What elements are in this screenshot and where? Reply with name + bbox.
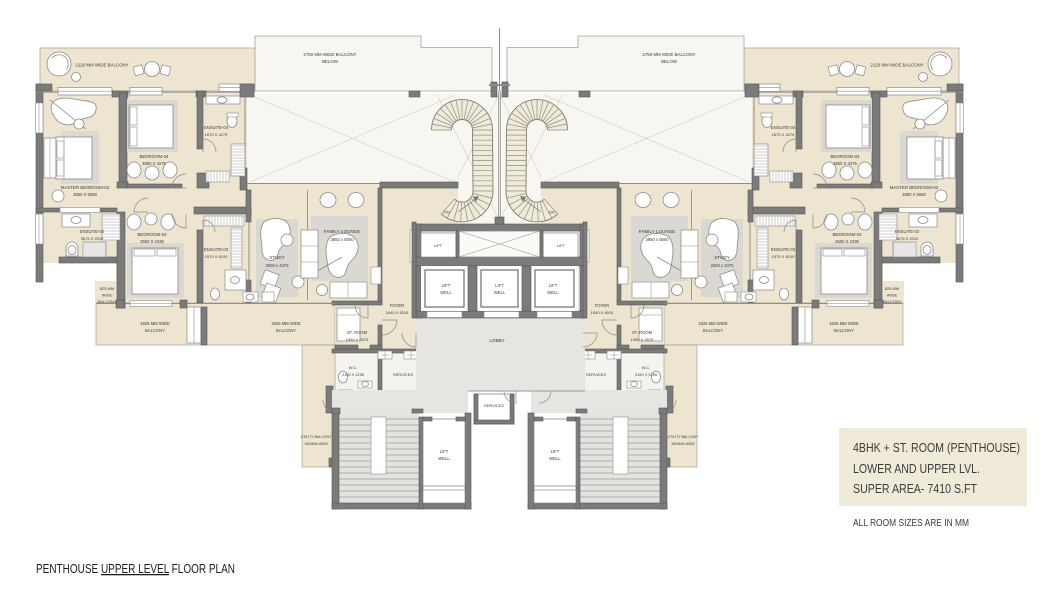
svg-text:SERVICES: SERVICES: [484, 403, 504, 408]
svg-text:W.C.: W.C.: [349, 365, 358, 370]
svg-text:BALCONY: BALCONY: [882, 299, 901, 304]
svg-text:3850 x 5600: 3850 x 5600: [330, 237, 354, 242]
svg-text:WIDE: WIDE: [887, 293, 898, 298]
svg-text:2500 x 4375: 2500 x 4375: [265, 263, 289, 268]
svg-text:BALCONY: BALCONY: [703, 328, 723, 333]
svg-text:SERVICES: SERVICES: [586, 372, 606, 377]
svg-text:BEDROOM-03: BEDROOM-03: [832, 232, 862, 237]
svg-text:1670 X 4275: 1670 X 4275: [205, 132, 228, 137]
svg-text:3650 X 4275: 3650 X 4275: [833, 161, 857, 166]
svg-text:ENSUITE-04: ENSUITE-04: [771, 125, 796, 130]
svg-text:DN: DN: [549, 211, 555, 215]
svg-text:ST. ROOM: ST. ROOM: [632, 330, 653, 335]
svg-text:FOYER: FOYER: [595, 303, 609, 308]
svg-text:1570 X 6100: 1570 X 6100: [772, 254, 795, 259]
svg-text:ENSUITE-04: ENSUITE-04: [204, 125, 229, 130]
svg-text:UTILITY BALCONY: UTILITY BALCONY: [301, 435, 332, 439]
svg-text:BALCONY: BALCONY: [834, 328, 854, 333]
svg-text:BALCONY: BALCONY: [145, 328, 165, 333]
svg-text:1825 MM WIDE: 1825 MM WIDE: [140, 321, 170, 326]
svg-text:LIFT: LIFT: [442, 283, 451, 288]
svg-text:WELL: WELL: [438, 456, 450, 461]
svg-text:DN: DN: [444, 211, 450, 215]
svg-text:SUPER AREA- 7410 S.FT: SUPER AREA- 7410 S.FT: [853, 481, 977, 496]
svg-text:825 MM: 825 MM: [100, 286, 114, 291]
svg-text:LOWER AND UPPER LVL.: LOWER AND UPPER LVL.: [853, 461, 980, 476]
svg-text:W.C.: W.C.: [642, 365, 651, 370]
svg-text:2120 MM WIDE BALCONY: 2120 MM WIDE BALCONY: [870, 63, 923, 68]
svg-text:1950 X 2675: 1950 X 2675: [346, 337, 369, 342]
svg-text:ENSUITE-02: ENSUITE-02: [895, 229, 920, 234]
svg-text:ENSUITE-03: ENSUITE-03: [204, 247, 229, 252]
svg-text:1825 MM WIDE: 1825 MM WIDE: [698, 321, 728, 326]
svg-text:1640 X 6515: 1640 X 6515: [386, 310, 409, 315]
svg-text:825 MM: 825 MM: [885, 286, 899, 291]
svg-text:SERVICES: SERVICES: [393, 372, 413, 377]
svg-text:WELL: WELL: [549, 456, 561, 461]
svg-text:2750 MM WIDE BALCONY: 2750 MM WIDE BALCONY: [303, 52, 356, 57]
svg-text:MASTER BEDROOM-02: MASTER BEDROOM-02: [890, 185, 939, 190]
svg-text:1570 X 6100: 1570 X 6100: [205, 254, 228, 259]
svg-text:PENTHOUSE UPPER LEVEL FLOOR PL: PENTHOUSE UPPER LEVEL FLOOR PLAN: [36, 561, 235, 576]
svg-text:WELL: WELL: [547, 290, 559, 295]
svg-text:LIFT: LIFT: [551, 449, 560, 454]
svg-text:WELL: WELL: [494, 290, 506, 295]
svg-text:3675 X 2010: 3675 X 2010: [896, 236, 919, 241]
svg-text:3650 X 5660: 3650 X 5660: [902, 192, 926, 197]
svg-text:ST. ROOM: ST. ROOM: [347, 330, 368, 335]
svg-text:BALCONY: BALCONY: [97, 299, 116, 304]
svg-text:BALCONY: BALCONY: [276, 328, 296, 333]
svg-text:2750 MM WIDE BALCONY: 2750 MM WIDE BALCONY: [642, 52, 695, 57]
svg-text:3675 X 2010: 3675 X 2010: [81, 236, 104, 241]
svg-text:WELL: WELL: [440, 290, 452, 295]
svg-text:LIFT: LIFT: [557, 243, 566, 248]
svg-text:ALL ROOM SIZES ARE IN MM: ALL ROOM SIZES ARE IN MM: [853, 518, 969, 529]
svg-text:2120 MM WIDE BALCONY: 2120 MM WIDE BALCONY: [75, 63, 128, 68]
svg-text:MASTER BEDROOM-02: MASTER BEDROOM-02: [61, 185, 110, 190]
svg-text:3550 X 4335: 3550 X 4335: [140, 239, 164, 244]
svg-text:1640 X 6515: 1640 X 6515: [591, 310, 614, 315]
svg-text:STUDY: STUDY: [714, 255, 730, 260]
svg-text:LIFT: LIFT: [549, 283, 558, 288]
svg-text:1500MM WIDE: 1500MM WIDE: [671, 442, 695, 446]
svg-text:1825 MM WIDE: 1825 MM WIDE: [829, 321, 859, 326]
svg-text:FAMILY LOUNGE: FAMILY LOUNGE: [324, 229, 361, 234]
svg-text:FOYER: FOYER: [390, 303, 404, 308]
svg-text:2500 x 4375: 2500 x 4375: [710, 263, 734, 268]
svg-text:1670 X 4275: 1670 X 4275: [772, 132, 795, 137]
svg-text:3650 X 4275: 3650 X 4275: [142, 161, 166, 166]
svg-text:LOBBY: LOBBY: [489, 338, 504, 343]
svg-text:4BHK + ST. ROOM (PENTHOUSE): 4BHK + ST. ROOM (PENTHOUSE): [853, 440, 1020, 455]
svg-text:3650 X 5660: 3650 X 5660: [73, 192, 97, 197]
svg-text:ENSUITE-03: ENSUITE-03: [771, 247, 796, 252]
svg-text:BEDROOM-04: BEDROOM-04: [830, 154, 860, 159]
svg-text:1500MM WIDE: 1500MM WIDE: [304, 442, 328, 446]
svg-text:STUDY: STUDY: [269, 255, 285, 260]
svg-text:LIFT: LIFT: [440, 449, 449, 454]
svg-text:ENSUITE-02: ENSUITE-02: [80, 229, 105, 234]
svg-text:1950 X 2675: 1950 X 2675: [631, 337, 654, 342]
svg-text:LIFT: LIFT: [495, 283, 504, 288]
svg-text:BEDROOM-03: BEDROOM-03: [137, 232, 167, 237]
svg-text:BEDROOM-04: BEDROOM-04: [139, 154, 169, 159]
svg-text:3850 x 5600: 3850 x 5600: [645, 237, 669, 242]
svg-text:FAMILY LOUNGE: FAMILY LOUNGE: [639, 229, 676, 234]
svg-text:BELOW: BELOW: [322, 59, 339, 64]
svg-text:1825 MM WIDE: 1825 MM WIDE: [271, 321, 301, 326]
svg-text:3550 X 4335: 3550 X 4335: [835, 239, 859, 244]
svg-text:BELOW: BELOW: [661, 59, 678, 64]
svg-text:2150 X 1255: 2150 X 1255: [342, 372, 364, 377]
svg-text:2150 X 1255: 2150 X 1255: [635, 372, 657, 377]
svg-text:UTILITY BALCONY: UTILITY BALCONY: [668, 435, 699, 439]
svg-text:LIFT: LIFT: [434, 243, 443, 248]
svg-text:WIDE: WIDE: [102, 293, 113, 298]
